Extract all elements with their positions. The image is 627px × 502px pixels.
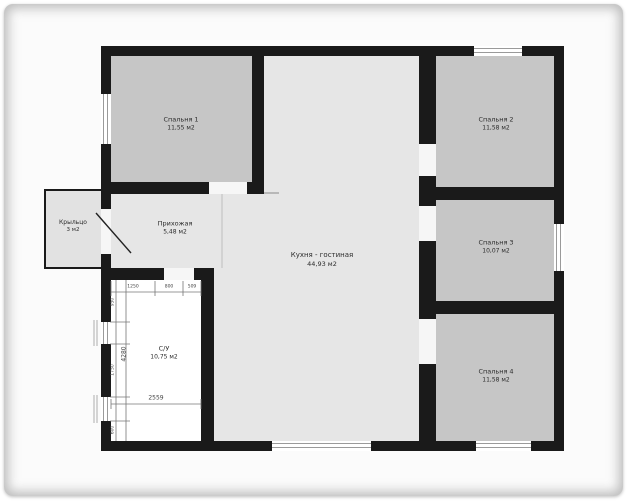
dim-chain-left-3: 600 bbox=[111, 426, 116, 435]
door-bedroom1-opening bbox=[209, 182, 247, 194]
door-bedroom2-opening bbox=[419, 144, 436, 176]
room-label-bathroom: С/У 10,75 м2 bbox=[150, 345, 177, 362]
wall-bedrooms-left-a bbox=[419, 46, 436, 144]
room-area: 3 м2 bbox=[67, 227, 80, 234]
room-name: Спальня 3 bbox=[478, 239, 513, 248]
room-label-hallway: Прихожая 5,48 м2 bbox=[158, 220, 193, 237]
window-bathroom-left-2 bbox=[101, 397, 111, 421]
room-name: Спальня 2 bbox=[478, 116, 513, 125]
room-name: Крыльцо bbox=[59, 219, 87, 227]
wall-bedroom1-right bbox=[252, 46, 264, 194]
window-bedroom4-bottom bbox=[476, 441, 531, 451]
room-area: 5,48 м2 bbox=[163, 228, 187, 236]
door-bedroom4-opening bbox=[419, 319, 436, 364]
dim-chain-left-1: 950 bbox=[111, 298, 116, 307]
dim-chain-top-1: 1250 bbox=[127, 285, 138, 290]
dim-chain-top-3: 509 bbox=[188, 285, 197, 290]
room-label-bedroom1: Спальня 1 11,55 м2 bbox=[163, 116, 198, 133]
dim-overall-width: 2559 bbox=[148, 395, 163, 402]
room-name: Прихожая bbox=[158, 220, 193, 229]
wall-bedrooms-left-b bbox=[419, 176, 436, 206]
dim-overall-height: 4280 bbox=[121, 346, 128, 361]
room-name: Кухня - гостиная bbox=[291, 251, 354, 260]
wall-bedrooms-left-c bbox=[419, 241, 436, 319]
room-area: 11,58 м2 bbox=[482, 124, 509, 132]
room-name: Спальня 1 bbox=[163, 116, 198, 125]
screenshot: Спальня 1 11,55 м2 Спальня 2 11,58 м2 Сп… bbox=[0, 0, 627, 502]
window-kitchen-bottom bbox=[272, 441, 371, 451]
window-bathroom-left-1 bbox=[101, 322, 111, 344]
wall-hall-bath-a bbox=[101, 268, 164, 280]
room-label-porch: Крыльцо 3 м2 bbox=[59, 219, 87, 235]
dim-chain-left-2: 1750 bbox=[111, 364, 116, 375]
wall-bedroom1-bottom-b bbox=[247, 182, 264, 194]
wall-bed2-bed3 bbox=[436, 187, 564, 200]
window-bedroom3-right bbox=[554, 224, 564, 271]
room-area: 44,93 м2 bbox=[307, 260, 337, 269]
wall-bedrooms-left-d bbox=[419, 364, 436, 451]
room-area: 11,55 м2 bbox=[167, 124, 194, 132]
room-area: 10,75 м2 bbox=[150, 353, 177, 361]
wall-bed3-bed4 bbox=[436, 301, 564, 314]
window-bedroom1-left bbox=[101, 94, 111, 144]
door-bathroom-opening bbox=[164, 268, 194, 280]
dim-chain-top-2: 800 bbox=[165, 285, 174, 290]
wall-bathroom-right bbox=[201, 268, 214, 451]
room-label-bedroom2: Спальня 2 11,58 м2 bbox=[478, 116, 513, 133]
wall-bedroom1-bottom-a bbox=[101, 182, 209, 194]
room-name: Спальня 4 bbox=[478, 368, 513, 377]
door-porch-opening bbox=[101, 209, 111, 254]
door-bedroom3-opening bbox=[419, 206, 436, 241]
room-area: 10,07 м2 bbox=[482, 247, 509, 255]
floorplan-photo: Спальня 1 11,55 м2 Спальня 2 11,58 м2 Сп… bbox=[4, 4, 623, 496]
floor-plan: Спальня 1 11,55 м2 Спальня 2 11,58 м2 Сп… bbox=[4, 4, 623, 496]
window-bedroom2-top bbox=[474, 46, 522, 56]
room-label-kitchen-living: Кухня - гостиная 44,93 м2 bbox=[291, 251, 354, 269]
room-label-bedroom3: Спальня 3 10,07 м2 bbox=[478, 239, 513, 256]
room-label-bedroom4: Спальня 4 11,58 м2 bbox=[478, 368, 513, 385]
room-name: С/У bbox=[159, 345, 170, 354]
room-area: 11,58 м2 bbox=[482, 376, 509, 384]
